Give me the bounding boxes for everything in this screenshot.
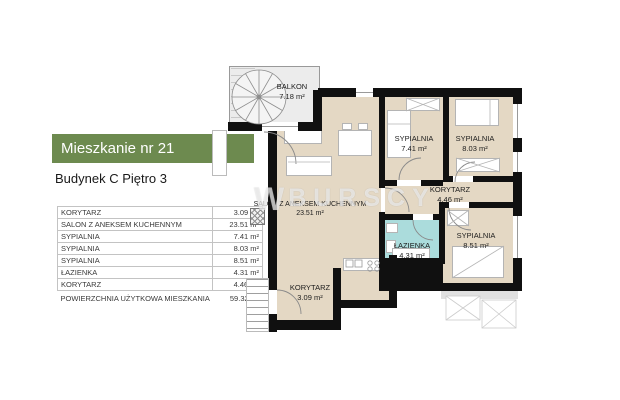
- stove-burners: [368, 261, 379, 271]
- door-arc: [399, 158, 421, 180]
- room-label-name: BALKON: [262, 82, 322, 92]
- room-label-area: 8.03 m²: [445, 144, 505, 154]
- watermark-text: BURSCY: [288, 183, 436, 213]
- floor-plan: BALKON 7.18 m² SALON Z ANEKSEM KUCHENNYM…: [0, 0, 620, 400]
- neighbor-balconies: [446, 296, 516, 328]
- room-label-sypialnia-851: SYPIALNIA 8.51 m²: [446, 231, 506, 251]
- door-arc: [264, 132, 296, 164]
- room-label-sypialnia-741: SYPIALNIA 7.41 m²: [384, 134, 444, 154]
- room-label-lazienka: ŁAZIENKA 4.31 m²: [382, 241, 442, 261]
- room-label-area: 7.18 m²: [262, 92, 322, 102]
- room-label-area: 3.09 m²: [280, 293, 340, 303]
- door-arc: [455, 162, 475, 182]
- room-label-area: 8.51 m²: [446, 241, 506, 251]
- door-arc: [413, 220, 433, 240]
- real-estate-floorplan-page: { "header": { "title": "Mieszkanie nr 21…: [0, 0, 620, 400]
- room-label-name: SYPIALNIA: [384, 134, 444, 144]
- room-label-area: 4.31 m²: [382, 251, 442, 261]
- kitchen-sink: [346, 260, 362, 267]
- room-label-name: SYPIALNIA: [445, 134, 505, 144]
- watermark-mark: W: [254, 183, 284, 215]
- agency-watermark: W BURSCY: [254, 183, 436, 215]
- room-label-name: SYPIALNIA: [446, 231, 506, 241]
- room-label-balkon: BALKON 7.18 m²: [262, 82, 322, 102]
- room-label-korytarz-309: KORYTARZ 3.09 m²: [280, 283, 340, 303]
- room-label-area: 7.41 m²: [384, 144, 444, 154]
- room-label-sypialnia-803: SYPIALNIA 8.03 m²: [445, 134, 505, 154]
- room-label-name: ŁAZIENKA: [382, 241, 442, 251]
- room-label-name: KORYTARZ: [280, 283, 340, 293]
